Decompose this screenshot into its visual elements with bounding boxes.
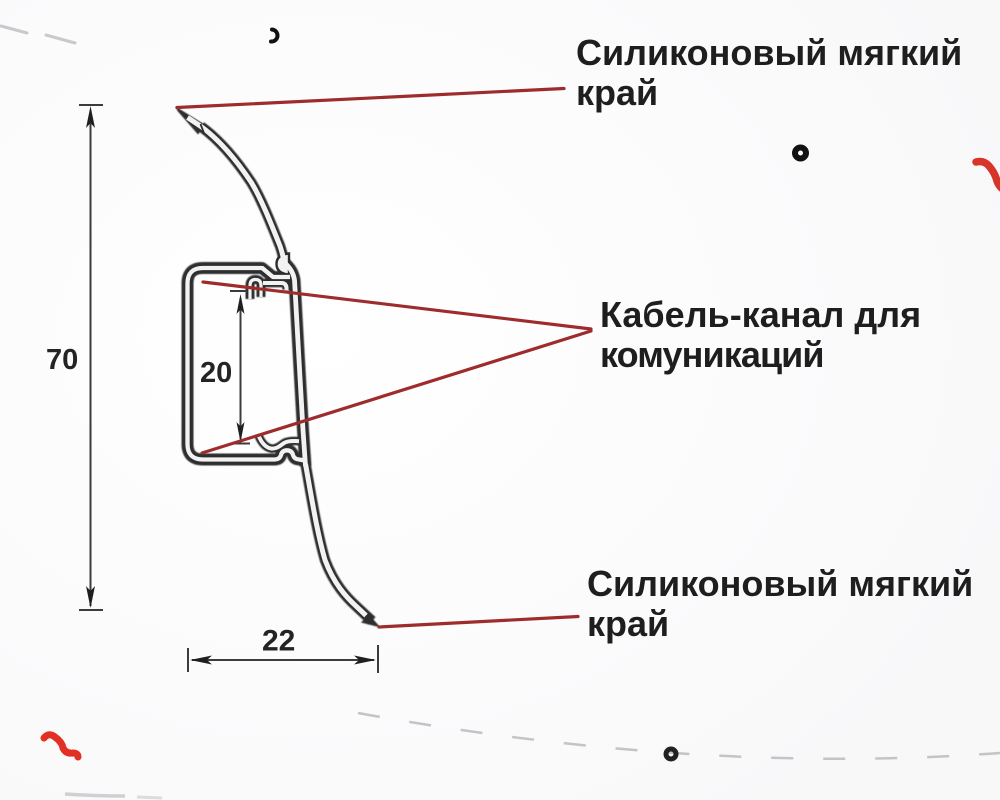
svg-text:Силиконовый мягкий: Силиконовый мягкий [587,563,973,604]
svg-text:Силиконовый мягкий: Силиконовый мягкий [576,32,962,73]
svg-text:20: 20 [200,357,232,389]
svg-text:Кабель-канал для: Кабель-канал для [600,294,921,335]
svg-text:22: 22 [262,625,295,658]
svg-text:край: край [587,603,669,644]
svg-text:край: край [576,72,658,113]
svg-text:комуникаций: комуникаций [600,334,824,375]
svg-text:70: 70 [46,344,78,376]
